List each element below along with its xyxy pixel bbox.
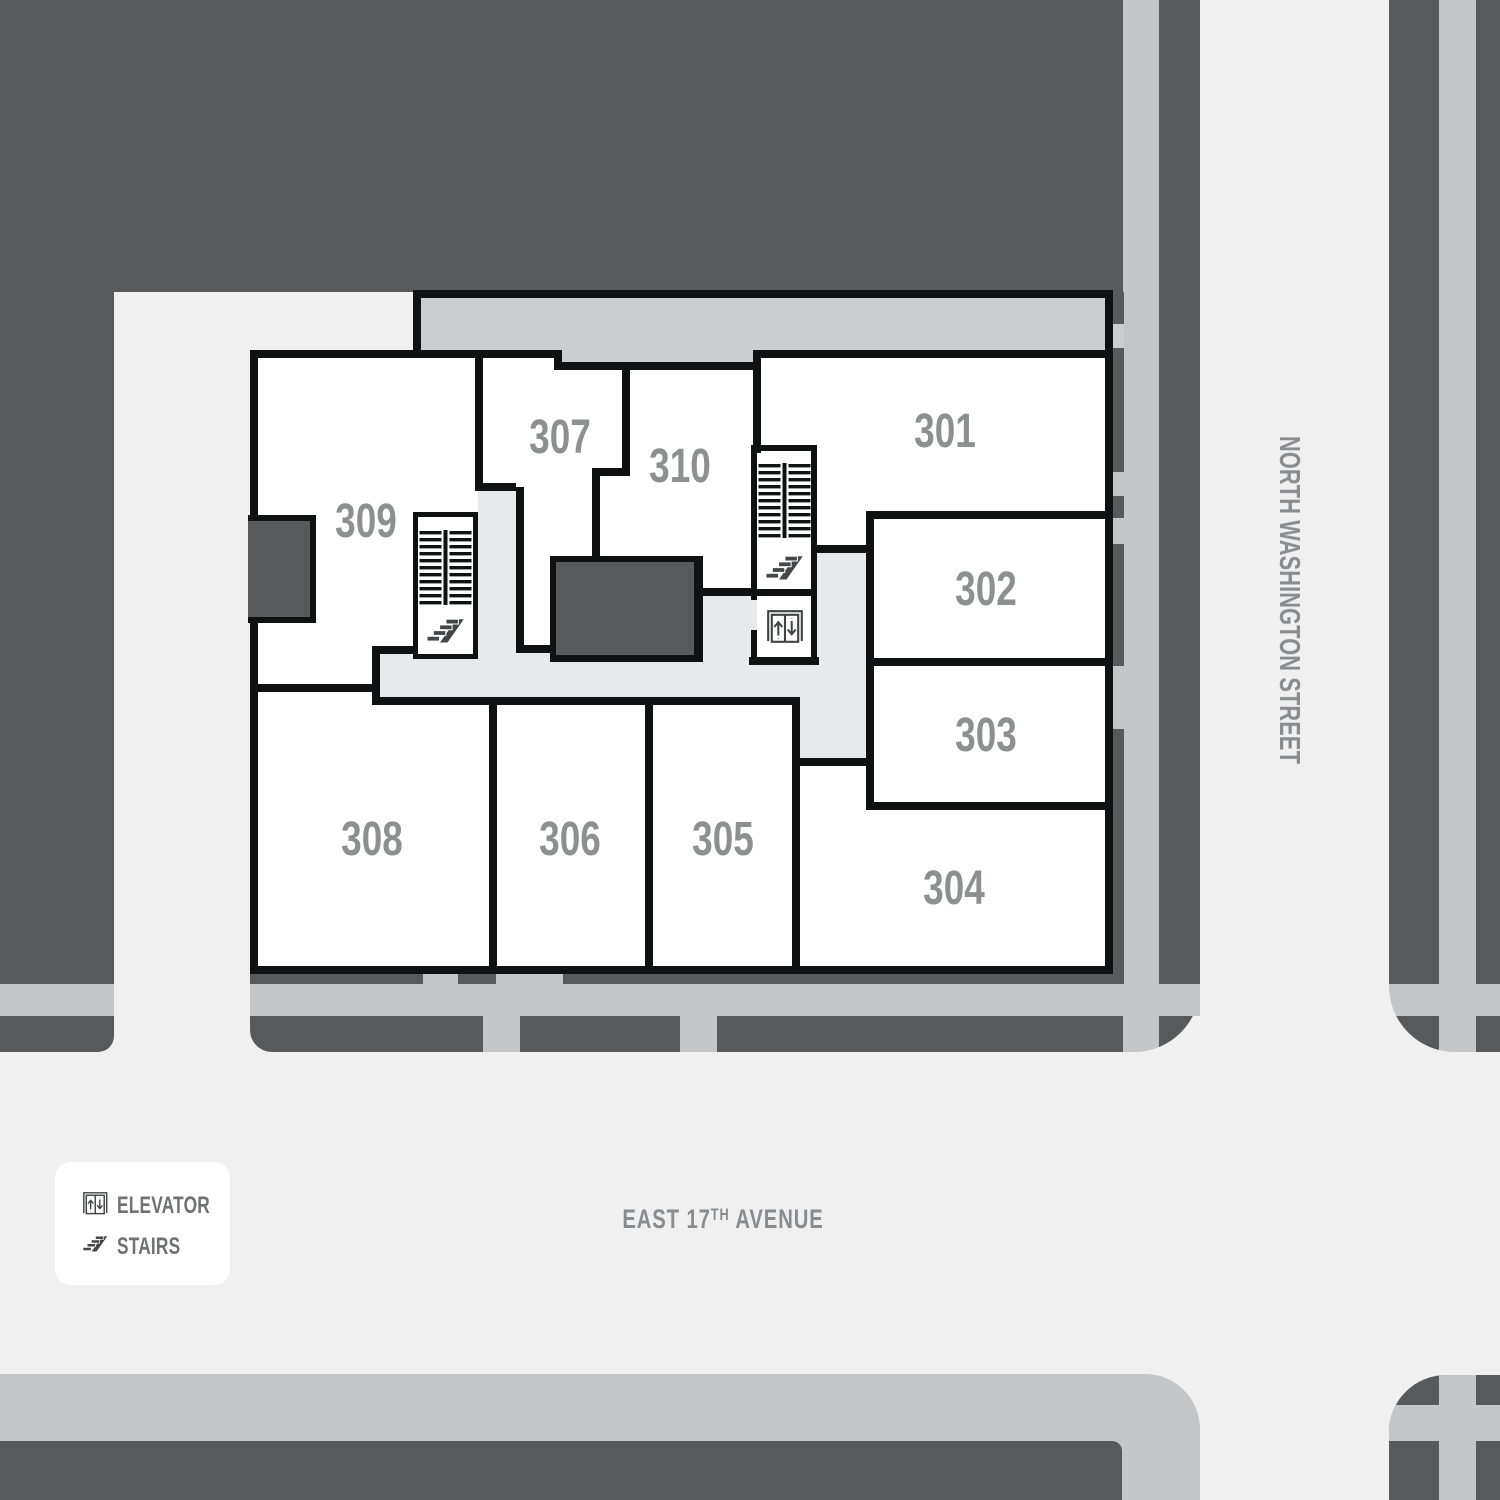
- svg-text:302: 302: [955, 562, 1017, 616]
- svg-text:309: 309: [335, 494, 397, 548]
- svg-text:307: 307: [529, 410, 591, 464]
- svg-text:310: 310: [649, 439, 711, 493]
- svg-text:STAIRS: STAIRS: [117, 1233, 180, 1259]
- svg-text:306: 306: [539, 812, 601, 866]
- svg-text:304: 304: [923, 861, 985, 915]
- svg-text:ELEVATOR: ELEVATOR: [117, 1192, 210, 1218]
- svg-text:308: 308: [341, 812, 403, 866]
- svg-text:301: 301: [914, 404, 976, 458]
- svg-text:NORTH WASHINGTON STREET: NORTH WASHINGTON STREET: [1273, 436, 1305, 764]
- svg-text:305: 305: [692, 812, 754, 866]
- svg-text:303: 303: [955, 708, 1017, 762]
